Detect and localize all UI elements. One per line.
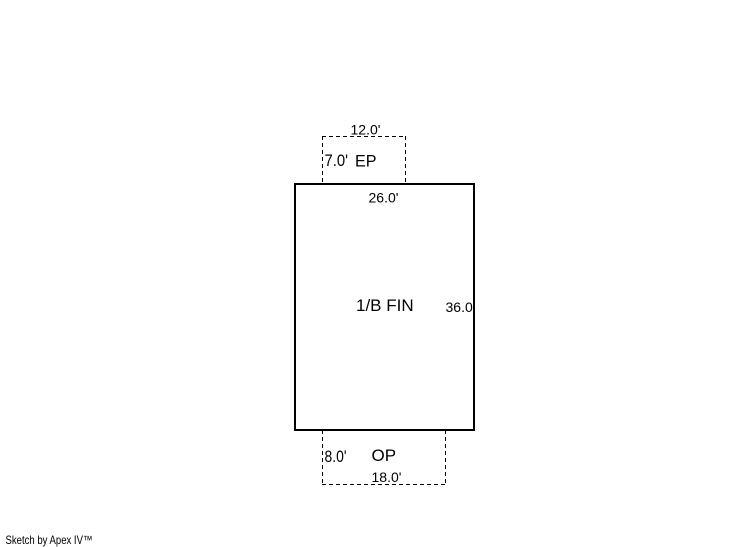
svg-text:18.0': 18.0' [372, 469, 402, 485]
svg-text:OP: OP [372, 446, 397, 465]
svg-text:EP: EP [355, 152, 377, 171]
svg-text:12.0': 12.0' [351, 122, 381, 138]
svg-text:7.0': 7.0' [325, 151, 349, 170]
svg-text:8.0': 8.0' [325, 447, 347, 466]
svg-text:1/B FIN: 1/B FIN [356, 296, 414, 315]
svg-text:26.0': 26.0' [369, 190, 399, 206]
svg-text:36.0': 36.0' [446, 299, 476, 315]
svg-text:Sketch by Apex IV™: Sketch by Apex IV™ [6, 533, 93, 547]
